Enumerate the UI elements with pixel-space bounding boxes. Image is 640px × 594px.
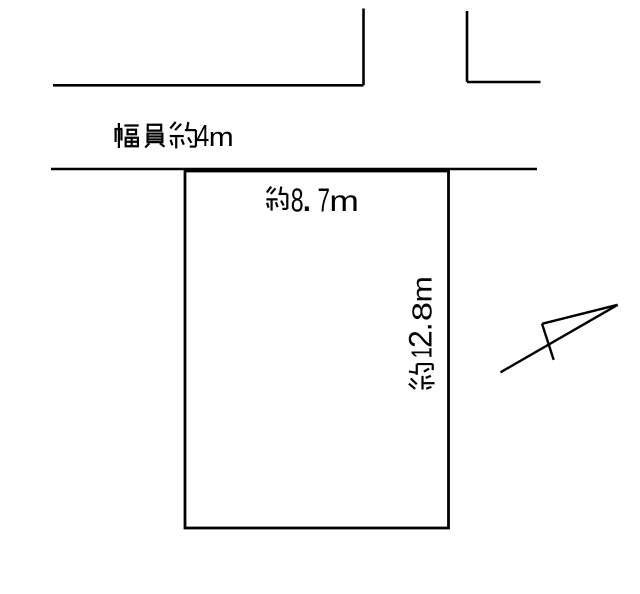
svg-text:.: .: [301, 173, 313, 221]
svg-text:.: .: [402, 322, 439, 331]
svg-text:7: 7: [318, 182, 330, 218]
svg-text:m: m: [407, 276, 438, 302]
svg-text:2: 2: [403, 330, 439, 348]
svg-text:m: m: [329, 184, 358, 218]
svg-text:4: 4: [196, 118, 209, 153]
svg-text:m: m: [209, 122, 234, 152]
svg-text:8: 8: [407, 302, 438, 321]
